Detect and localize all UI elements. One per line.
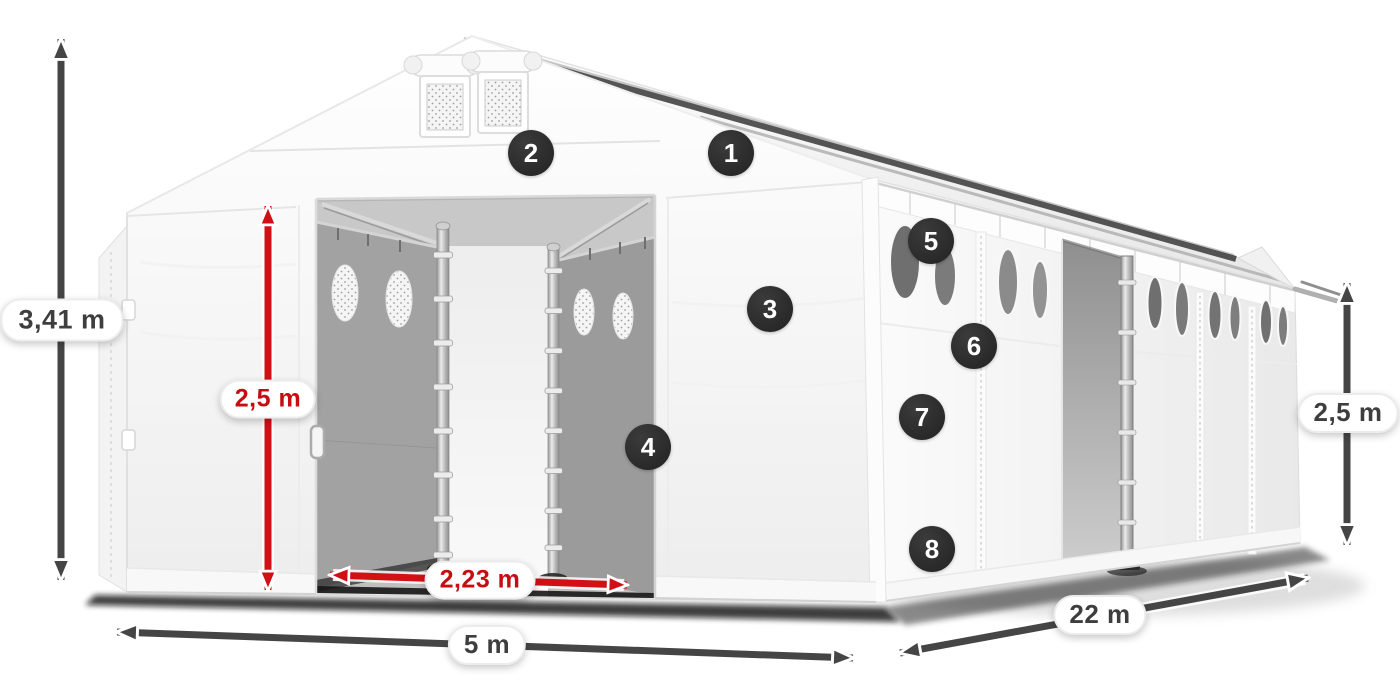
- callout-badge-1[interactable]: 1: [708, 130, 754, 176]
- callout-badge-2[interactable]: 2: [508, 130, 554, 176]
- callout-badge-7[interactable]: 7: [899, 394, 945, 440]
- tent-dimension-diagram: 3,41 m 2,5 m 2,23 m 5 m 22 m 2,5 m 1 2 3…: [0, 0, 1400, 700]
- vent-mesh: [485, 80, 521, 126]
- dimension-label-total-height: 3,41 m: [0, 298, 123, 341]
- front-door-interior: [316, 195, 655, 601]
- callout-badge-4[interactable]: 4: [625, 424, 671, 470]
- side-door-pole: [1121, 256, 1133, 566]
- dimension-label-side-length: 22 m: [1053, 595, 1146, 635]
- strap-tab: [122, 300, 135, 320]
- callout-badge-3[interactable]: 3: [747, 286, 793, 332]
- dimension-label-wall-height: 2,5 m: [1298, 393, 1399, 433]
- partition-window: [613, 293, 633, 339]
- callout-badge-8[interactable]: 8: [909, 526, 955, 572]
- callout-badge-5[interactable]: 5: [908, 218, 954, 264]
- partition-window: [332, 265, 358, 321]
- tent-illustration: [0, 0, 1400, 700]
- door-handle: [311, 426, 324, 458]
- partition-window: [386, 271, 412, 327]
- callout-badge-6[interactable]: 6: [951, 323, 997, 369]
- dimension-label-door-height: 2,5 m: [220, 380, 316, 419]
- interior-partition-right: [559, 237, 655, 595]
- left-wall-sliver: [99, 226, 127, 592]
- dimension-label-door-width: 2,23 m: [425, 561, 536, 600]
- interior-partition-left: [316, 222, 437, 588]
- vent-mesh: [427, 84, 463, 130]
- dimension-label-front-width: 5 m: [448, 625, 526, 665]
- interior-open-gap: [449, 246, 548, 600]
- strap-tab: [122, 430, 135, 450]
- partition-window: [574, 289, 594, 335]
